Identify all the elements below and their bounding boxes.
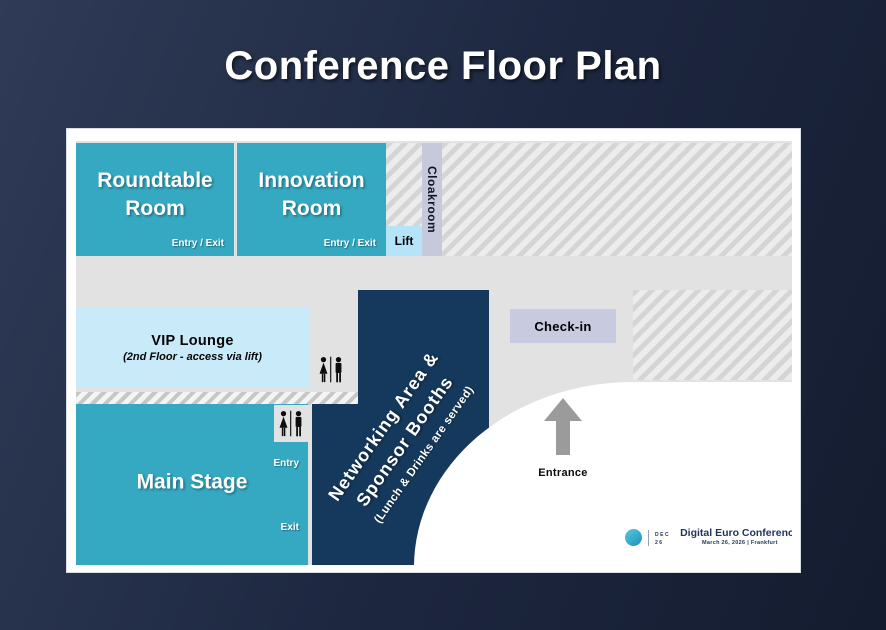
- main-stage-entry-label: Entry: [273, 458, 299, 469]
- lift-label: Lift: [395, 234, 414, 248]
- restroom-tile: [274, 405, 308, 442]
- conference-logo: DEC 26 Digital Euro Conference March 26,…: [625, 527, 792, 547]
- cloakroom-label: Cloakroom: [425, 166, 439, 233]
- main-stage-label: Main Stage: [76, 468, 308, 496]
- check-in-label: Check-in: [534, 319, 591, 334]
- check-in-desk: Check-in: [510, 309, 616, 343]
- logo-badge-line2: 26: [655, 539, 670, 547]
- innovation-room-label: Innovation Room: [237, 167, 386, 224]
- up-arrow-icon: [543, 398, 583, 455]
- hatched-area-top-right: [442, 143, 792, 256]
- innovation-room-door-label: Entry / Exit: [324, 238, 376, 249]
- logo-divider: [648, 530, 649, 546]
- vip-lounge-note: (2nd Floor - access via lift): [123, 351, 262, 363]
- vip-lounge: VIP Lounge (2nd Floor - access via lift): [76, 308, 309, 388]
- main-stage-exit-label: Exit: [281, 522, 299, 533]
- restroom-icon: [316, 356, 348, 386]
- logo-text: Digital Euro Conference March 26, 2026 |…: [680, 527, 792, 546]
- logo-circle-icon: [625, 529, 642, 546]
- floor-plan-card: Roundtable Room Entry / Exit Innovation …: [66, 128, 801, 573]
- logo-badge: DEC 26: [655, 531, 670, 547]
- roundtable-room-door-label: Entry / Exit: [172, 238, 224, 249]
- vip-lounge-label: VIP Lounge: [151, 333, 234, 349]
- roundtable-room: Roundtable Room Entry / Exit: [76, 143, 234, 256]
- page-title: Conference Floor Plan: [0, 44, 886, 89]
- floor-area: Roundtable Room Entry / Exit Innovation …: [76, 141, 792, 565]
- up-arrow-icon: [543, 398, 583, 455]
- logo-date: March 26, 2026 | Frankfurt: [680, 540, 792, 546]
- cloakroom: Cloakroom: [422, 143, 442, 256]
- restroom-icon: [276, 410, 306, 437]
- hatched-area-right: [633, 290, 792, 380]
- lift: Lift: [386, 226, 422, 256]
- restroom-icon: [316, 356, 346, 383]
- logo-badge-line1: DEC: [655, 531, 670, 539]
- logo-name: Digital Euro Conference: [680, 527, 792, 539]
- roundtable-room-label: Roundtable Room: [76, 167, 234, 224]
- innovation-room: Innovation Room Entry / Exit: [237, 143, 386, 256]
- entrance-label: Entrance: [503, 467, 623, 479]
- networking-area-lower: [312, 404, 358, 565]
